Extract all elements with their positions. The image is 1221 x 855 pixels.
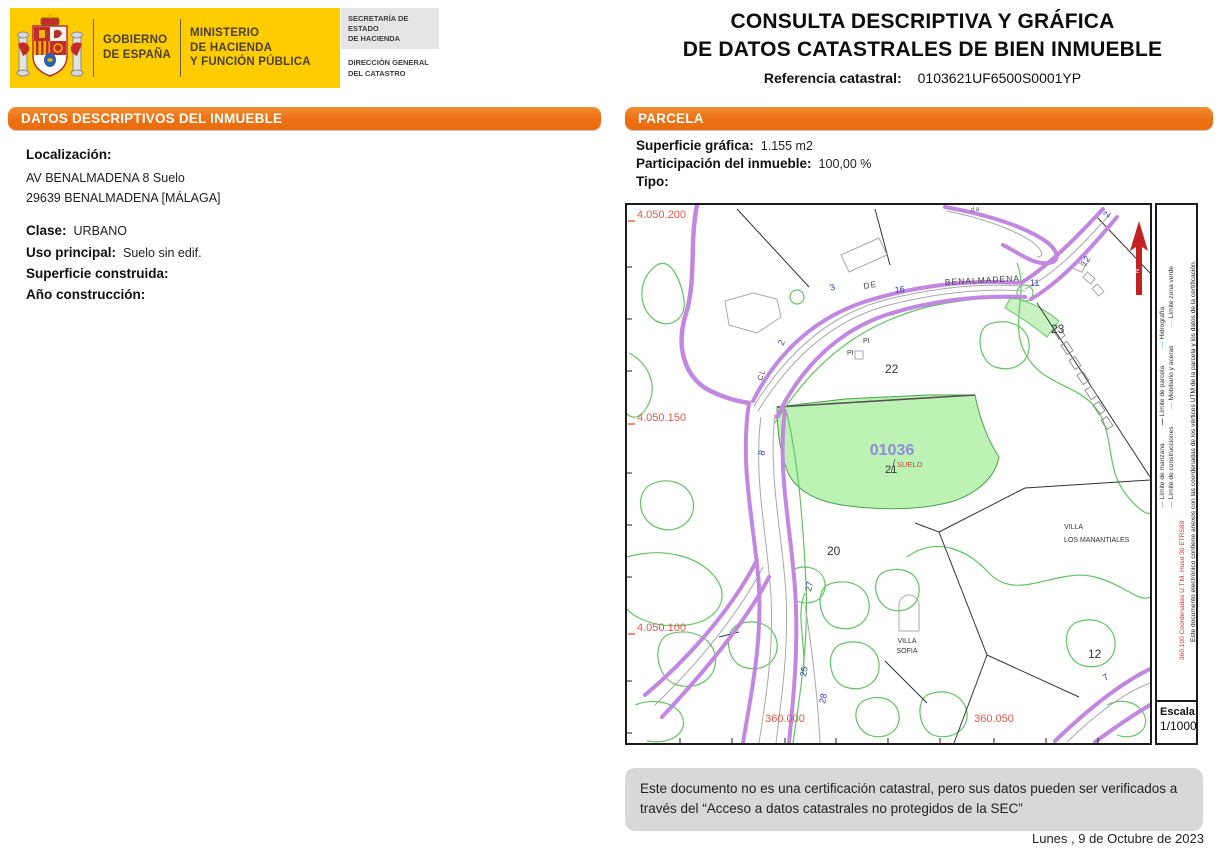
field-tipo: Tipo: xyxy=(636,174,676,189)
document-date: Lunes , 9 de Octubre de 2023 xyxy=(1032,831,1204,846)
house-number-11: 11 xyxy=(1030,278,1039,288)
logo-divider xyxy=(93,19,94,77)
gobierno-label: GOBIERNO DE ESPAÑA xyxy=(103,33,171,63)
legend-mobiliario-aceras: —Mobiliario y aceras xyxy=(1168,345,1175,409)
house-number-16: 16 xyxy=(894,284,905,295)
parcel-number-22: 22 xyxy=(885,362,899,376)
localizacion-label: Localización: xyxy=(26,147,112,162)
house-number-2a: 2 xyxy=(1101,210,1112,219)
certification-note: Este documento electrónico contiene anex… xyxy=(1190,209,1198,700)
legend-limite-construcciones: —Límite de construcciones xyxy=(1168,426,1175,508)
map-canvas: 4.050.200 4.050.150 4.050.100 360.000 36… xyxy=(625,203,1152,745)
department-block: SECRETARÍA DE ESTADO DE HACIENDA DIRECCI… xyxy=(341,8,439,88)
legend-limite-manzana: —Límite de manzana xyxy=(1159,443,1166,508)
house-number-27: 27 xyxy=(803,581,815,593)
page-title-line2: DE DATOS CATASTRALES DE BIEN INMUEBLE xyxy=(630,36,1215,64)
secretaria-label: SECRETARÍA DE ESTADO DE HACIENDA xyxy=(341,8,439,49)
coord-x1: 360.000 xyxy=(765,713,805,725)
field-superficie-grafica: Superficie gráfica:1.155 m2 xyxy=(636,138,813,153)
cadastral-reference: Referencia catastral:0103621UF6500S0001Y… xyxy=(630,70,1215,86)
parcel-number-20: 20 xyxy=(827,544,841,558)
villa-manantiales-line2: LOS MANANTIALES xyxy=(1064,537,1130,544)
field-anio-construccion: Año construcción: xyxy=(26,287,152,302)
legend-column-1: —Límite de manzana —Límite de parcela —H… xyxy=(1159,209,1167,700)
gobierno-banner: GOBIERNO DE ESPAÑA MINISTERIO DE HACIEND… xyxy=(10,8,340,88)
street-label-fragment: da xyxy=(970,206,981,214)
legend-area: —Límite de manzana —Límite de parcela —H… xyxy=(1157,205,1196,700)
parcel-number-21: 21 xyxy=(885,464,897,476)
villa-sofia-line2: SOFIA xyxy=(896,648,917,655)
coord-y2: 4.050.150 xyxy=(637,412,686,424)
coord-x2: 360.050 xyxy=(974,713,1014,725)
villa-manantiales-line1: VILLA xyxy=(1064,524,1083,531)
map-section: 4.050.200 4.050.150 4.050.100 360.000 36… xyxy=(625,203,1198,745)
legend-limite-zona-verde: —Límite zona verde xyxy=(1168,266,1175,327)
address-line2: 29639 BENALMADENA [MÁLAGA] xyxy=(26,191,221,205)
field-uso-principal: Uso principal:Suelo sin edif. xyxy=(26,245,202,260)
page-title-line1: CONSULTA DESCRIPTIVA Y GRÁFICA xyxy=(630,8,1215,36)
coord-y1: 4.050.200 xyxy=(637,209,686,221)
house-number-3: 3 xyxy=(828,282,836,293)
svg-text:N: N xyxy=(1135,269,1141,273)
parcel-code-label: 01036 xyxy=(870,442,915,459)
poi-pi-1: PI xyxy=(863,338,870,345)
cadastral-document-page: GOBIERNO DE ESPAÑA MINISTERIO DE HACIEND… xyxy=(0,0,1221,855)
house-number-7: 7 xyxy=(1101,672,1110,683)
field-participacion: Participación del inmueble:100,00 % xyxy=(636,156,871,171)
legend-limite-parcela: —Límite de parcela xyxy=(1159,366,1166,425)
reference-label: Referencia catastral: xyxy=(764,70,902,86)
house-number-25: 25 xyxy=(798,666,810,678)
logo-divider-2 xyxy=(180,19,181,77)
field-clase: Clase:URBANO xyxy=(26,223,127,238)
parcel-number-23: 23 xyxy=(1051,322,1065,336)
parcel-number-12: 12 xyxy=(1088,647,1102,661)
house-number-2b: 2 xyxy=(776,338,787,347)
field-superficie-construida: Superficie construida: xyxy=(26,266,176,281)
north-arrow-icon: N xyxy=(1130,221,1148,295)
poi-pi-2: PI xyxy=(847,350,854,357)
disclaimer-box: Este documento no es una certificación c… xyxy=(625,768,1203,831)
reference-value: 0103621UF6500S0001YP xyxy=(918,70,1081,86)
spain-coat-of-arms-icon xyxy=(16,12,84,84)
section-header-parcela: PARCELA xyxy=(625,107,1213,130)
ministerio-label: MINISTERIO DE HACIENDA Y FUNCIÓN PÚBLICA xyxy=(190,26,311,71)
map-legend-sidebar: —Límite de manzana —Límite de parcela —H… xyxy=(1155,203,1198,745)
scale-box: Escala: 1/1000 xyxy=(1157,700,1196,743)
coordinate-ticks xyxy=(628,221,635,634)
house-number-28: 28 xyxy=(817,693,829,705)
legend-column-2: —Límite de construcciones —Mobiliario y … xyxy=(1168,209,1176,700)
utm-coordinates-note: 360.100 Coordenadas U.T.M. Huso 30 ETRS8… xyxy=(1179,209,1187,700)
section-header-datos-descriptivos: DATOS DESCRIPTIVOS DEL INMUEBLE xyxy=(8,107,601,130)
address-line1: AV BENALMADENA 8 Suelo xyxy=(26,171,185,185)
legend-hidrografia: —Hidrografía xyxy=(1159,307,1166,348)
house-number-8: 8 xyxy=(756,449,767,456)
street-label-de: DE xyxy=(863,279,878,291)
title-block: CONSULTA DESCRIPTIVA Y GRÁFICA DE DATOS … xyxy=(630,8,1215,86)
coord-y3: 4.050.100 xyxy=(637,622,686,634)
direccion-label: DIRECCIÓN GENERAL DEL CATASTRO xyxy=(341,49,439,87)
villa-sofia-line1: VILLA xyxy=(897,638,916,645)
parcel-use-label: SUELO xyxy=(897,460,923,469)
cadastral-map: 4.050.200 4.050.150 4.050.100 360.000 36… xyxy=(627,205,1150,743)
scale-label: Escala: xyxy=(1160,706,1193,718)
scale-value: 1/1000 xyxy=(1160,719,1193,733)
